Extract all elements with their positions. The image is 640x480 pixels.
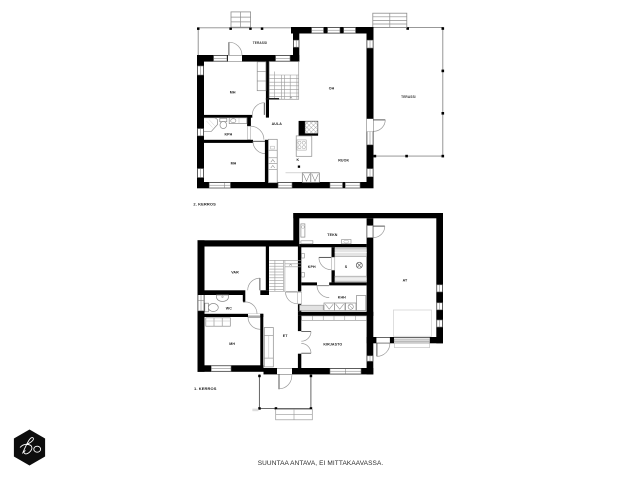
svg-text:1. KERROS: 1. KERROS	[194, 386, 217, 391]
svg-text:RUOK: RUOK	[338, 159, 349, 163]
svg-text:AULA: AULA	[272, 122, 283, 126]
svg-text:MH: MH	[230, 90, 236, 94]
svg-text:WC: WC	[226, 306, 232, 310]
svg-text:2. KERROS: 2. KERROS	[193, 201, 216, 206]
svg-text:KIRJASTO: KIRJASTO	[323, 343, 342, 347]
svg-text:AT: AT	[403, 278, 408, 282]
svg-text:TERASSI: TERASSI	[401, 95, 416, 99]
svg-text:KPH: KPH	[224, 132, 232, 136]
svg-text:KHH: KHH	[338, 295, 346, 299]
svg-text:TEKN: TEKN	[327, 233, 337, 237]
svg-text:ET: ET	[283, 334, 288, 338]
svg-text:MH: MH	[229, 342, 235, 346]
svg-text:SUUNTAA ANTAVA, EI MITTAKAAVAS: SUUNTAA ANTAVA, EI MITTAKAAVASSA.	[258, 460, 384, 467]
svg-text:KPH: KPH	[308, 265, 316, 269]
svg-text:TERASSI: TERASSI	[253, 41, 268, 45]
svg-text:VAR: VAR	[231, 270, 239, 274]
svg-text:MH: MH	[231, 162, 237, 166]
svg-text:OH: OH	[329, 86, 335, 90]
svg-text:K: K	[296, 158, 299, 162]
